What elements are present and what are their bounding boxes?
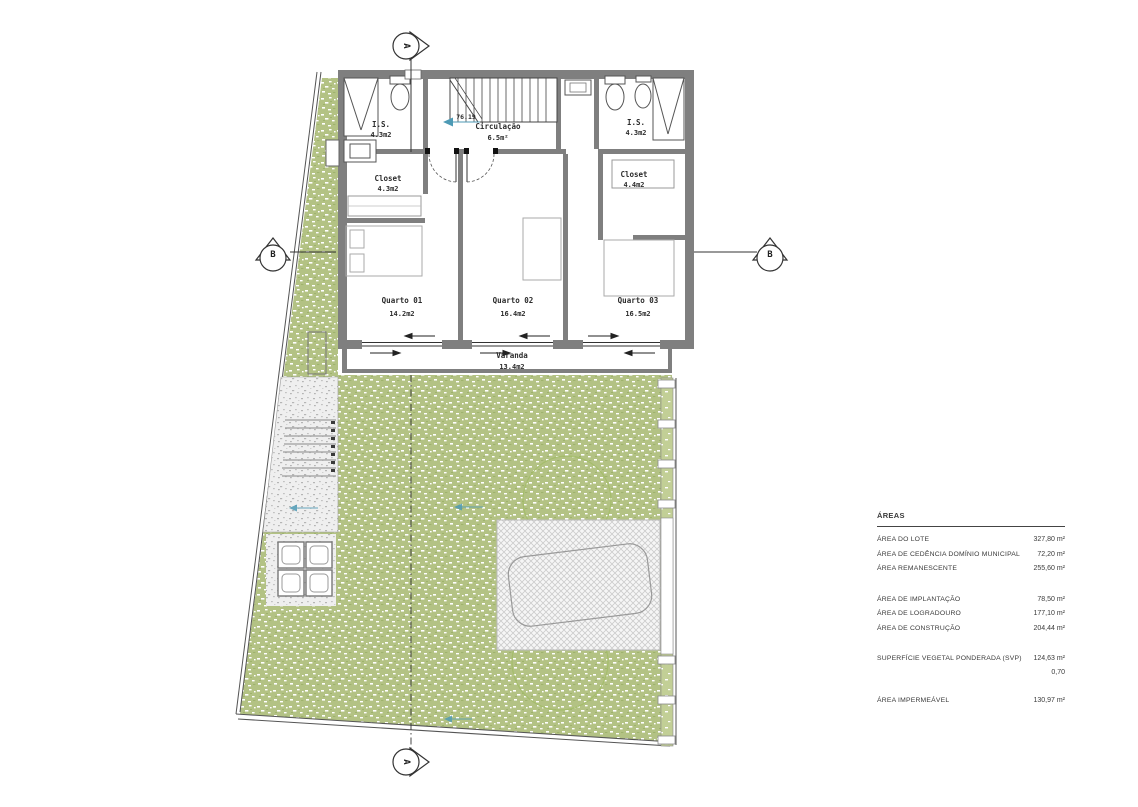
area-label: ÁREA DO LOTE xyxy=(877,533,929,548)
table-row: ÁREA DE IMPLANTAÇÃO 78,50 m² xyxy=(877,593,1065,608)
room-area-bath-left: 4.3m2 xyxy=(370,131,391,139)
entrance-gate xyxy=(661,518,673,654)
table-row: ÁREA DE CONSTRUÇÃO 204,44 m² xyxy=(877,622,1065,637)
section-marker-a-top: A xyxy=(393,32,429,60)
room-area-bedroom3: 16.5m2 xyxy=(625,310,650,318)
table-row: SUPERFÍCIE VEGETAL PONDERADA (SVP) 124,6… xyxy=(877,652,1065,667)
room-area-circulation: 6.5m² xyxy=(487,134,508,142)
table-group-gap xyxy=(877,577,1065,593)
table-row: ÁREA DE CEDÊNCIA DOMÍNIO MUNICIPAL 72,20… xyxy=(877,548,1065,563)
table-group-gap xyxy=(877,636,1065,652)
top-wall-opening xyxy=(405,70,421,79)
washbasin xyxy=(565,80,591,95)
room-area-bedroom2: 16.4m2 xyxy=(500,310,525,318)
area-value: 78,50 m² xyxy=(1037,593,1065,608)
table-row: ÁREA IMPERMEÁVEL 130,97 m² xyxy=(877,694,1065,709)
area-value-secondary: 0,70 xyxy=(1051,667,1065,678)
area-label: ÁREA DE IMPLANTAÇÃO xyxy=(877,593,960,608)
table-row: ÁREA DE LOGRADOURO 177,10 m² xyxy=(877,607,1065,622)
garden-path xyxy=(263,377,338,532)
room-area-closet-right: 4.4m2 xyxy=(623,181,644,189)
area-value: 327,80 m² xyxy=(1033,533,1065,548)
room-label-closet-left: Closet xyxy=(374,174,401,183)
room-area-balcony: 13.4m2 xyxy=(499,363,524,371)
area-label: ÁREA DE CEDÊNCIA DOMÍNIO MUNICIPAL xyxy=(877,548,1020,563)
section-letter: A xyxy=(401,43,411,49)
room-area-bedroom1: 14.2m2 xyxy=(389,310,414,318)
table-row: ÁREA DO LOTE 327,80 m² xyxy=(877,533,1065,548)
table-row: ÁREA REMANESCENTE 255,60 m² xyxy=(877,562,1065,577)
table-subrow: 0,70 xyxy=(877,667,1065,678)
section-marker-b-left: B xyxy=(256,238,290,271)
area-label: SUPERFÍCIE VEGETAL PONDERADA (SVP) xyxy=(877,652,1022,667)
room-area-closet-left: 4.3m2 xyxy=(377,185,398,193)
area-label: ÁREA REMANESCENTE xyxy=(877,562,957,577)
areas-table-title: ÁREAS xyxy=(877,511,1065,520)
window-ledge xyxy=(326,140,339,166)
room-label-circulation: Circulação xyxy=(475,122,521,131)
room-label-bedroom1: Quarto 01 xyxy=(382,296,423,305)
room-label-bath-left: I.S. xyxy=(372,120,390,129)
section-letter: A xyxy=(401,759,411,765)
area-value: 255,60 m² xyxy=(1033,562,1065,577)
area-value: 124,63 m² xyxy=(1033,652,1065,667)
room-label-balcony: Varanda xyxy=(496,351,528,360)
area-value: 204,44 m² xyxy=(1033,622,1065,637)
areas-table-rule xyxy=(877,526,1065,527)
drawing-sheet: A A B B 76.19 I.S. 4.3m2 Circulação xyxy=(0,0,1138,807)
room-label-bath-right: I.S. xyxy=(627,118,645,127)
paved-parking-area xyxy=(497,520,660,650)
room-label-closet-right: Closet xyxy=(620,170,647,179)
area-value: 130,97 m² xyxy=(1033,694,1065,709)
room-label-bedroom2: Quarto 02 xyxy=(493,296,534,305)
section-marker-b-right: B xyxy=(753,238,787,271)
room-label-bedroom3: Quarto 03 xyxy=(618,296,659,305)
level-value: 76.19 xyxy=(456,113,476,121)
table-group-gap xyxy=(877,678,1065,694)
area-value: 72,20 m² xyxy=(1037,548,1065,563)
section-letter: B xyxy=(270,250,276,260)
area-label: ÁREA DE LOGRADOURO xyxy=(877,607,961,622)
room-area-bath-right: 4.3m2 xyxy=(625,129,646,137)
section-letter: B xyxy=(767,250,773,260)
planter-box xyxy=(308,332,326,374)
area-label: ÁREA IMPERMEÁVEL xyxy=(877,694,949,709)
area-value: 177,10 m² xyxy=(1033,607,1065,622)
areas-table: ÁREAS ÁREA DO LOTE 327,80 m² ÁREA DE CED… xyxy=(877,511,1065,708)
section-marker-a-bottom: A xyxy=(393,748,429,776)
area-label: ÁREA DE CONSTRUÇÃO xyxy=(877,622,960,637)
